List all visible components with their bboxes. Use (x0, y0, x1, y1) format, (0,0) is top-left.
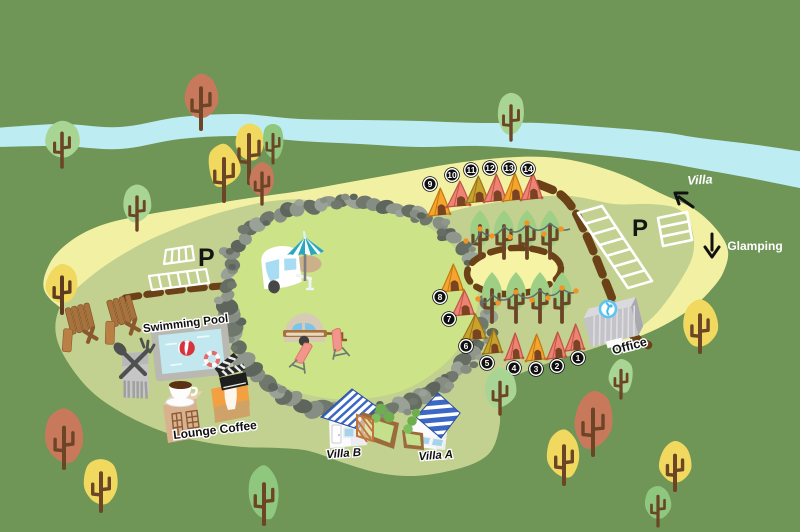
svg-text:Villa A: Villa A (418, 449, 453, 463)
svg-text:8: 8 (438, 292, 443, 302)
svg-text:5: 5 (485, 358, 490, 368)
svg-text:Glamping: Glamping (727, 239, 782, 253)
svg-text:12: 12 (485, 163, 495, 173)
svg-text:11: 11 (467, 165, 476, 175)
svg-text:1: 1 (576, 353, 581, 363)
svg-text:10: 10 (447, 170, 457, 180)
svg-text:2: 2 (555, 361, 560, 371)
svg-text:Villa B: Villa B (326, 447, 361, 461)
svg-text:Villa: Villa (687, 172, 713, 187)
svg-text:7: 7 (447, 314, 452, 324)
svg-text:P: P (632, 215, 648, 242)
svg-text:13: 13 (504, 163, 514, 173)
svg-text:6: 6 (464, 341, 469, 351)
svg-text:9: 9 (428, 179, 433, 189)
svg-text:14: 14 (523, 164, 533, 174)
svg-text:4: 4 (512, 363, 517, 373)
svg-text:3: 3 (534, 364, 539, 374)
svg-text:P: P (198, 244, 215, 272)
